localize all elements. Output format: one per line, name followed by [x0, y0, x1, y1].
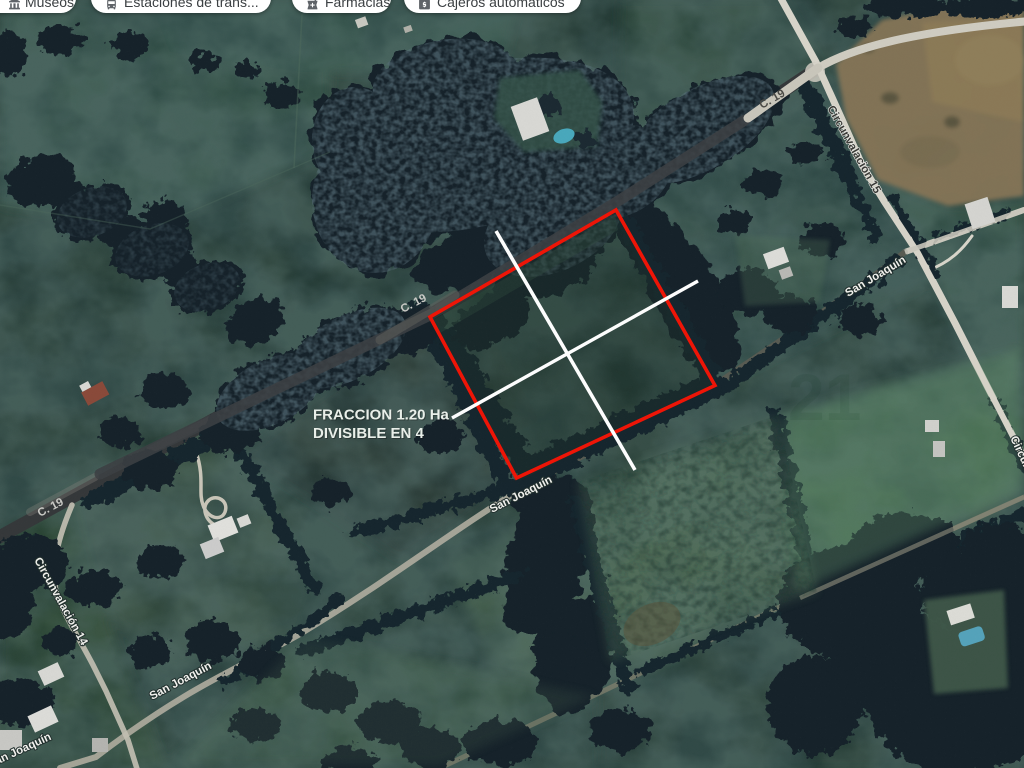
- svg-text:DIVISIBLE EN 4: DIVISIBLE EN 4: [313, 425, 425, 442]
- svg-text:FRACCION 1.20 Ha: FRACCION 1.20 Ha: [313, 407, 450, 424]
